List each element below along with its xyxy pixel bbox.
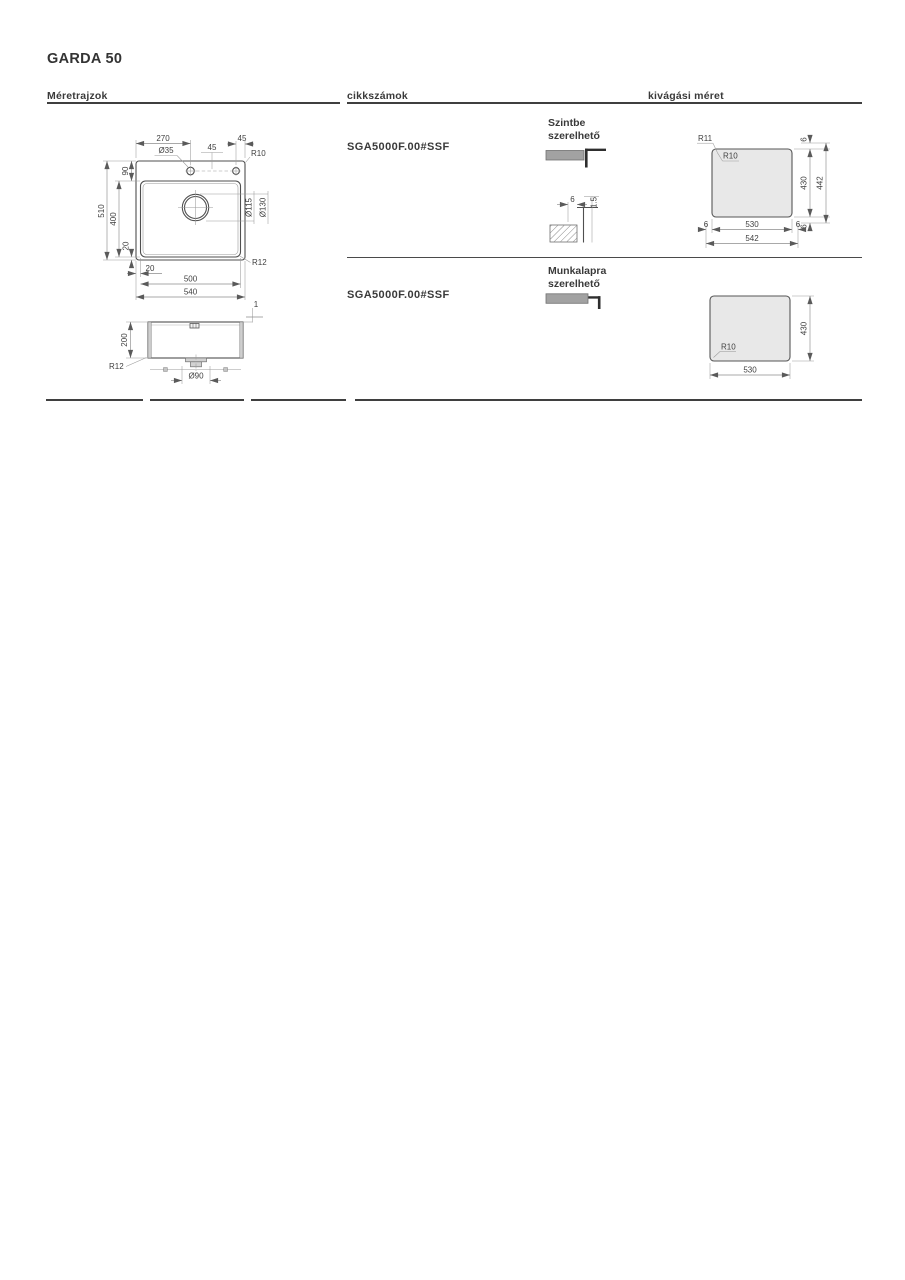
flush-recess-detail-drawing: 6 1.5 [550,195,599,243]
dim-drain-outer: Ø130 [259,197,268,217]
dim-bowl-radius: R12 [252,258,267,267]
dim-drain-inner: Ø115 [245,197,254,217]
dim-recess-width: 6 [570,195,575,204]
dim-cutout-recess-right: 6 [796,220,801,229]
sink-section-view-drawing: Ø90 200 R12 1 [109,300,263,384]
cutout-top-mount-drawing: R10 430 530 [710,296,814,379]
dim-rim-bottom: 20 [122,241,131,250]
dim-total-depth: 510 [97,204,106,218]
dim-cutout-width: 530 [745,220,759,229]
dim-recess-depth: 1.5 [590,196,599,208]
dim-cutout-height: 430 [800,176,809,190]
flush-mount-icon [546,149,606,168]
dim-rim-top: 90 [121,166,130,175]
dim-section-radius: R12 [109,362,124,371]
dim-total-width: 540 [184,288,198,297]
dim-drain-dia: Ø90 [188,372,204,381]
dim-depth: 200 [120,333,129,347]
dim-cutout2-width: 530 [743,366,757,375]
dim-hole-edge: 45 [238,134,247,143]
dim-cutout-height-outer: 442 [816,176,825,190]
dim-outer-radius: R10 [251,149,266,158]
dim-bowl-offset: 20 [146,264,155,273]
dim-cutout-width-outer: 542 [745,234,759,243]
dim-hole-gap: 45 [208,143,217,152]
dim-cutout-recess-left: 6 [704,220,709,229]
dim-bowl-depth: 400 [109,212,118,226]
dim-bowl-width: 500 [184,275,198,284]
dim-cutout-recess-top: 6 [800,137,809,142]
dim-tap-hole-dia: Ø35 [158,146,174,155]
dim-tap-hole-pos: 270 [156,134,170,143]
top-mount-icon [546,294,601,309]
dim-cutout2-height: 430 [800,321,809,335]
dim-cutout-recess-bottom: 6 [800,224,809,229]
dim-cutout-corner-inner: R10 [723,152,738,161]
cutout-flush-drawing: R11 R10 6 430 6 442 6 530 6 542 [697,134,830,248]
dim-cutout-corner-outer: R11 [698,134,713,143]
technical-drawings: 270 Ø35 45 45 R10 510 400 90 [0,0,905,420]
sink-top-view-drawing: 270 Ø35 45 45 R10 510 400 90 [97,134,268,300]
dim-rim-height: 1 [254,300,259,309]
dim-cutout2-corner: R10 [721,343,736,352]
